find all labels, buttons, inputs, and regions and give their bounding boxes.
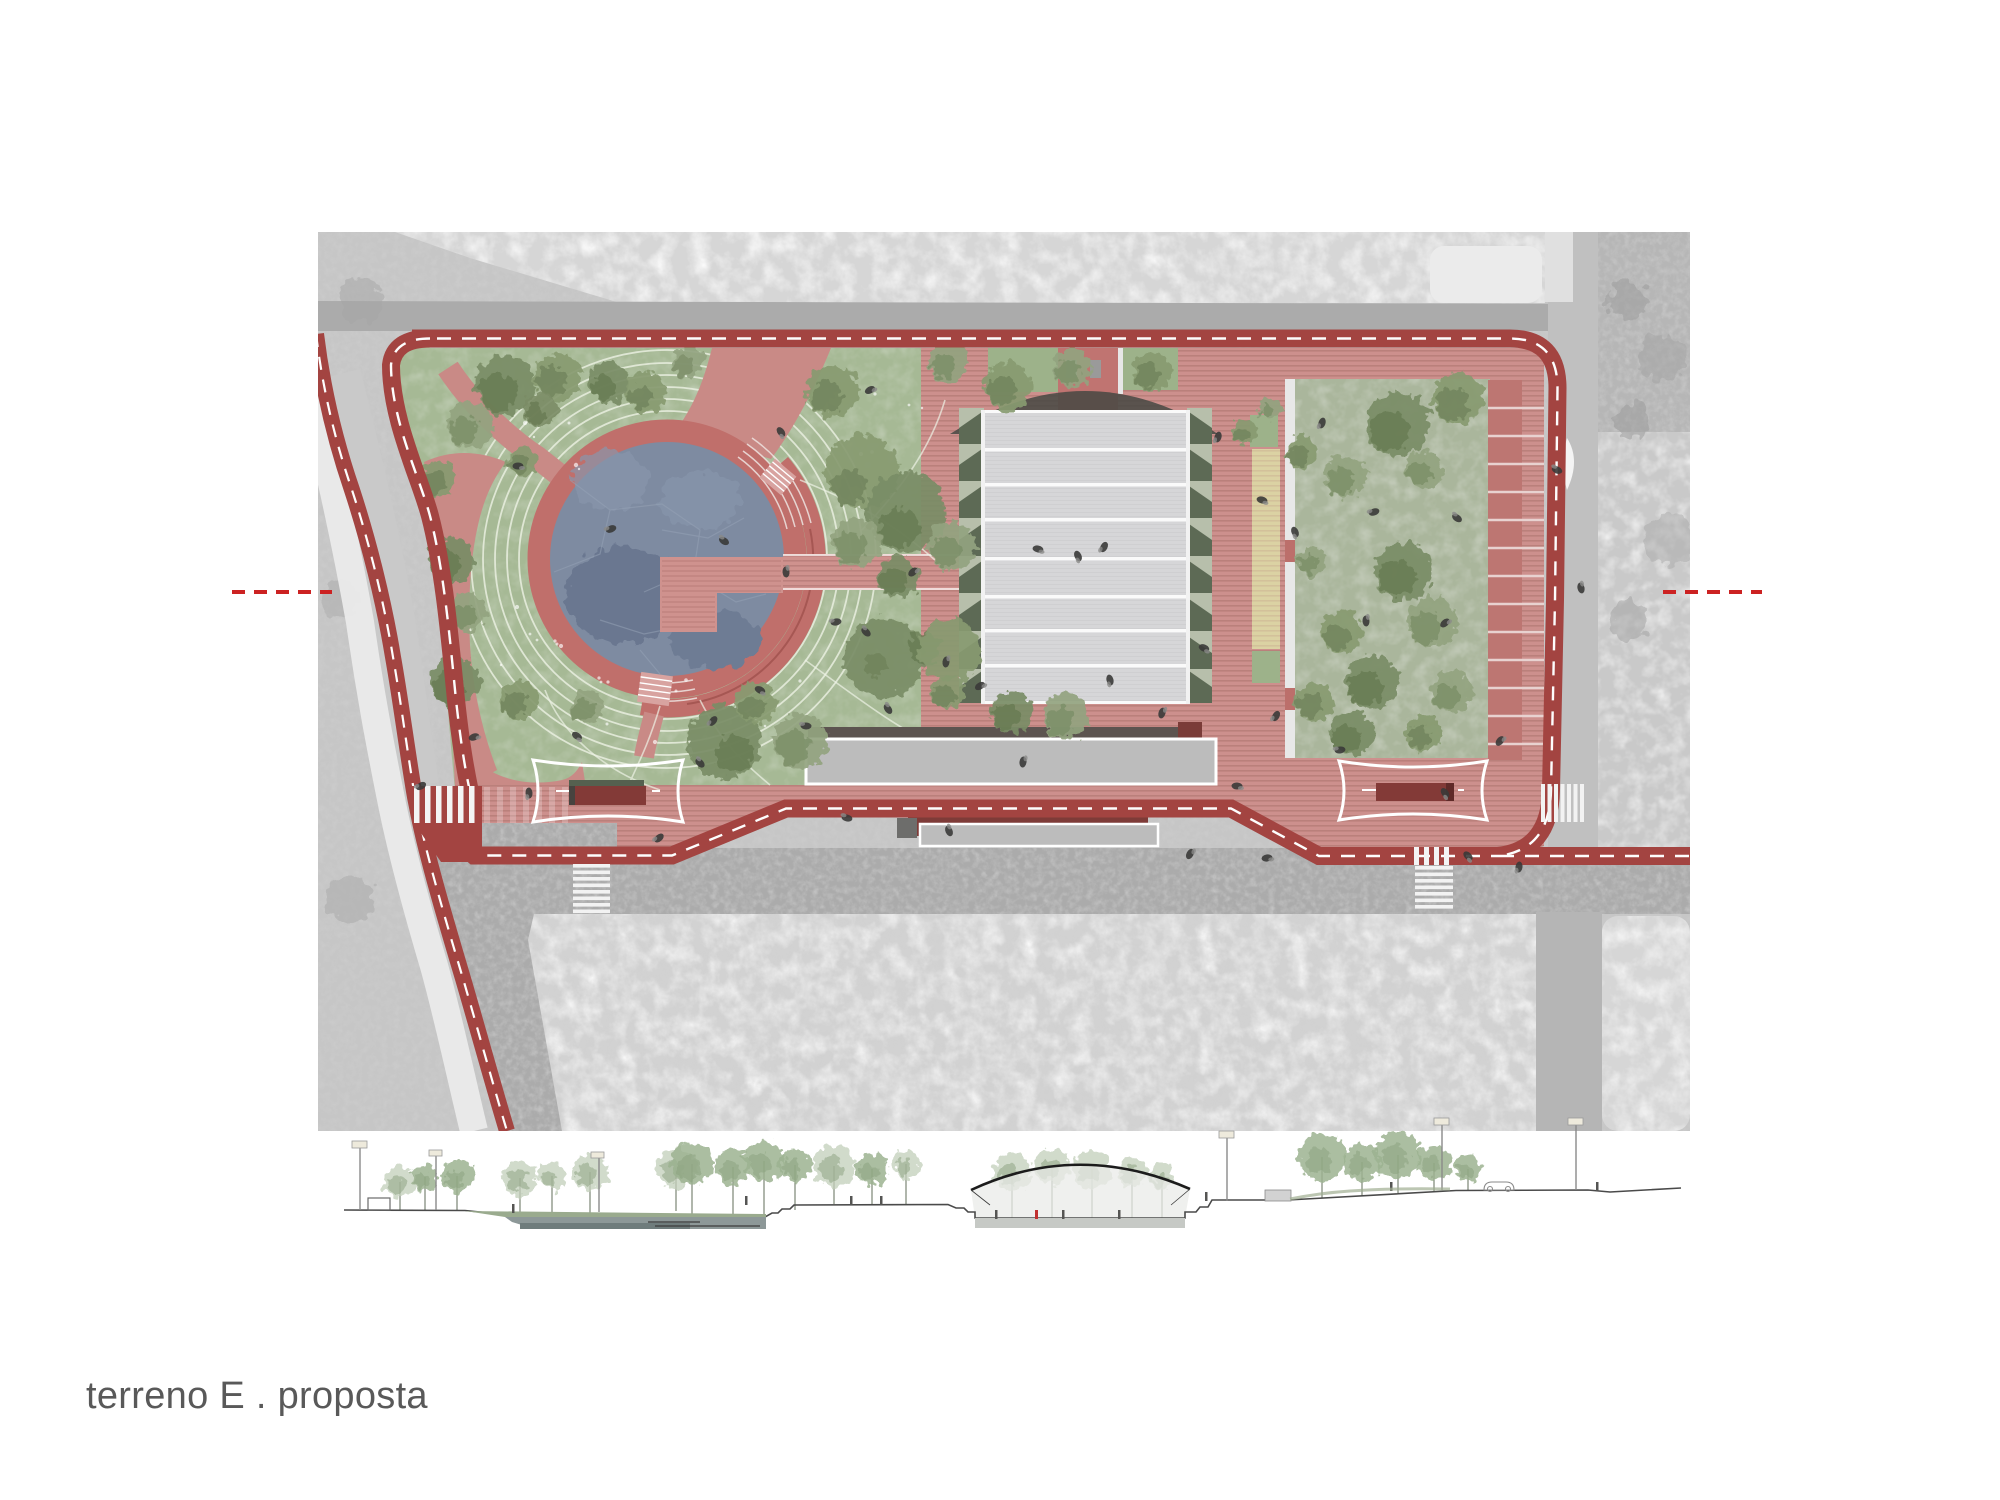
svg-text:terreno E . proposta: terreno E . proposta	[86, 1375, 428, 1417]
